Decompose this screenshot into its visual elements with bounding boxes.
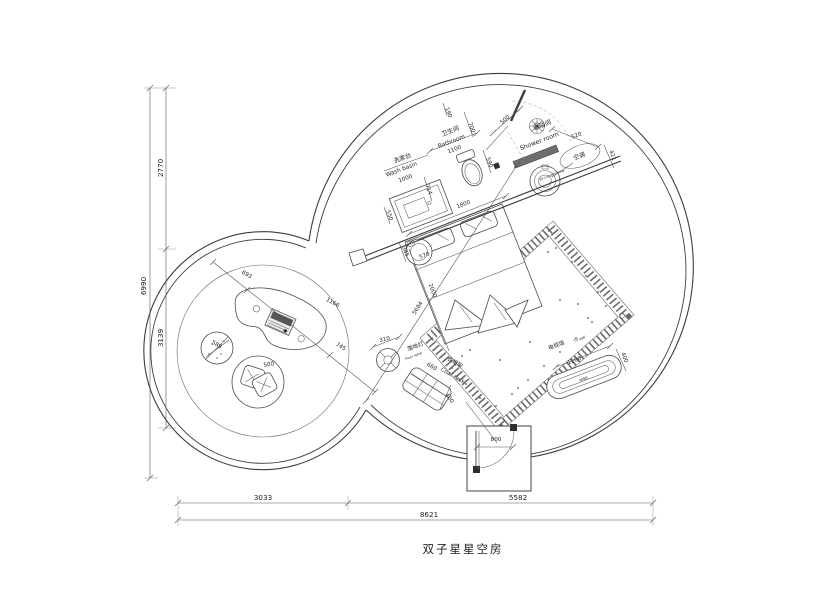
floor-plan-canvas: 双子星星空房 277031396990303355828621洗漱台Wash b… [0,0,837,592]
dim-3139: 3139 [156,328,165,347]
star-dot [543,365,545,367]
entrance [467,424,531,491]
dim-line [503,193,509,199]
dim-700: 700 [466,122,476,135]
dim-line [370,344,376,350]
star-dot [585,275,587,277]
star-dot [527,379,529,381]
floor-lamp [377,349,400,372]
dim-5582: 5582 [509,493,527,502]
star-dot [461,355,463,357]
dim-693: 693 [240,270,253,281]
bathroom-partition [511,90,525,121]
dim-1166: 1166 [325,297,341,309]
dim-8621: 8621 [420,510,438,519]
label-tvwall-cn: 电视墙 [547,338,566,352]
dim-line [549,126,555,132]
label-ac-cn: 空调 [572,150,586,162]
dim-5684: 5684 [412,300,425,316]
wall-end-cap [349,249,367,266]
star-dot [597,291,599,293]
drawing-title: 双子星星空房 [423,542,504,556]
dim-550: 550 [384,210,394,223]
star-dot [559,299,561,301]
label-floorlamp-en: Floor lamp [405,351,423,361]
toilet [455,149,485,189]
star-dot [469,349,471,351]
dim-310: 310 [379,336,391,344]
shower-glass-line [512,101,571,141]
star-dot [555,247,557,249]
star-dot [571,261,573,263]
dim-line [406,231,412,237]
dim-line [210,259,216,265]
dim-line [363,398,369,404]
dim-520: 520 [571,131,584,141]
star-dot [451,367,453,369]
small-room-wall [144,232,366,470]
dim-2770: 2770 [156,158,165,177]
label-washbasin-en: Wash basin [385,161,418,179]
dim-line [427,148,433,154]
label-tvwall-en: TV wall [572,335,586,343]
dim-1000: 1000 [398,174,414,185]
dim-500-door: 500 [499,114,511,126]
star-dot [605,305,607,307]
dim-190: 190 [443,107,453,120]
round-chair [232,356,284,408]
dim-745: 745 [334,342,347,353]
label-shower-cn: 淋浴间 [532,118,552,132]
label-coatrack-cn: 衣帽架 [446,355,465,371]
dim-660: 660 [425,362,438,373]
star-dot [529,341,531,343]
dim-590: 590 [484,157,494,170]
washbasin-counter [389,180,452,233]
door-jamb [510,424,517,431]
door-jamb [473,466,480,473]
star-dot [577,303,579,305]
dim-line [490,130,496,136]
dim-line [607,343,613,349]
dim-line [327,352,333,358]
dim-line [553,364,559,370]
dim-400-tv: 400 [619,352,629,365]
label-floorlamp-cn: 落地灯 [406,339,425,353]
star-dot [479,397,481,399]
dim-3033: 3033 [254,493,272,502]
bed [405,204,542,344]
dimension-lines [144,85,656,526]
star-dot [517,387,519,389]
dim-1800: 1800 [456,200,472,211]
star-dot [495,405,497,407]
star-dot [587,317,589,319]
star-dot [499,359,501,361]
star-dot [465,383,467,385]
floor-plan-drawing: 双子星星空房 277031396990303355828621洗漱台Wash b… [0,0,837,592]
star-dot [547,251,549,253]
star-dot [559,351,561,353]
entrance-porch [467,426,531,491]
dimension-labels: 277031396990303355828621洗漱台Wash basin100… [139,107,629,519]
dim-line [396,334,402,340]
dim-800: 800 [491,437,502,443]
dim-6990: 6990 [139,276,148,295]
star-dot [511,393,513,395]
star-dot [591,321,593,323]
